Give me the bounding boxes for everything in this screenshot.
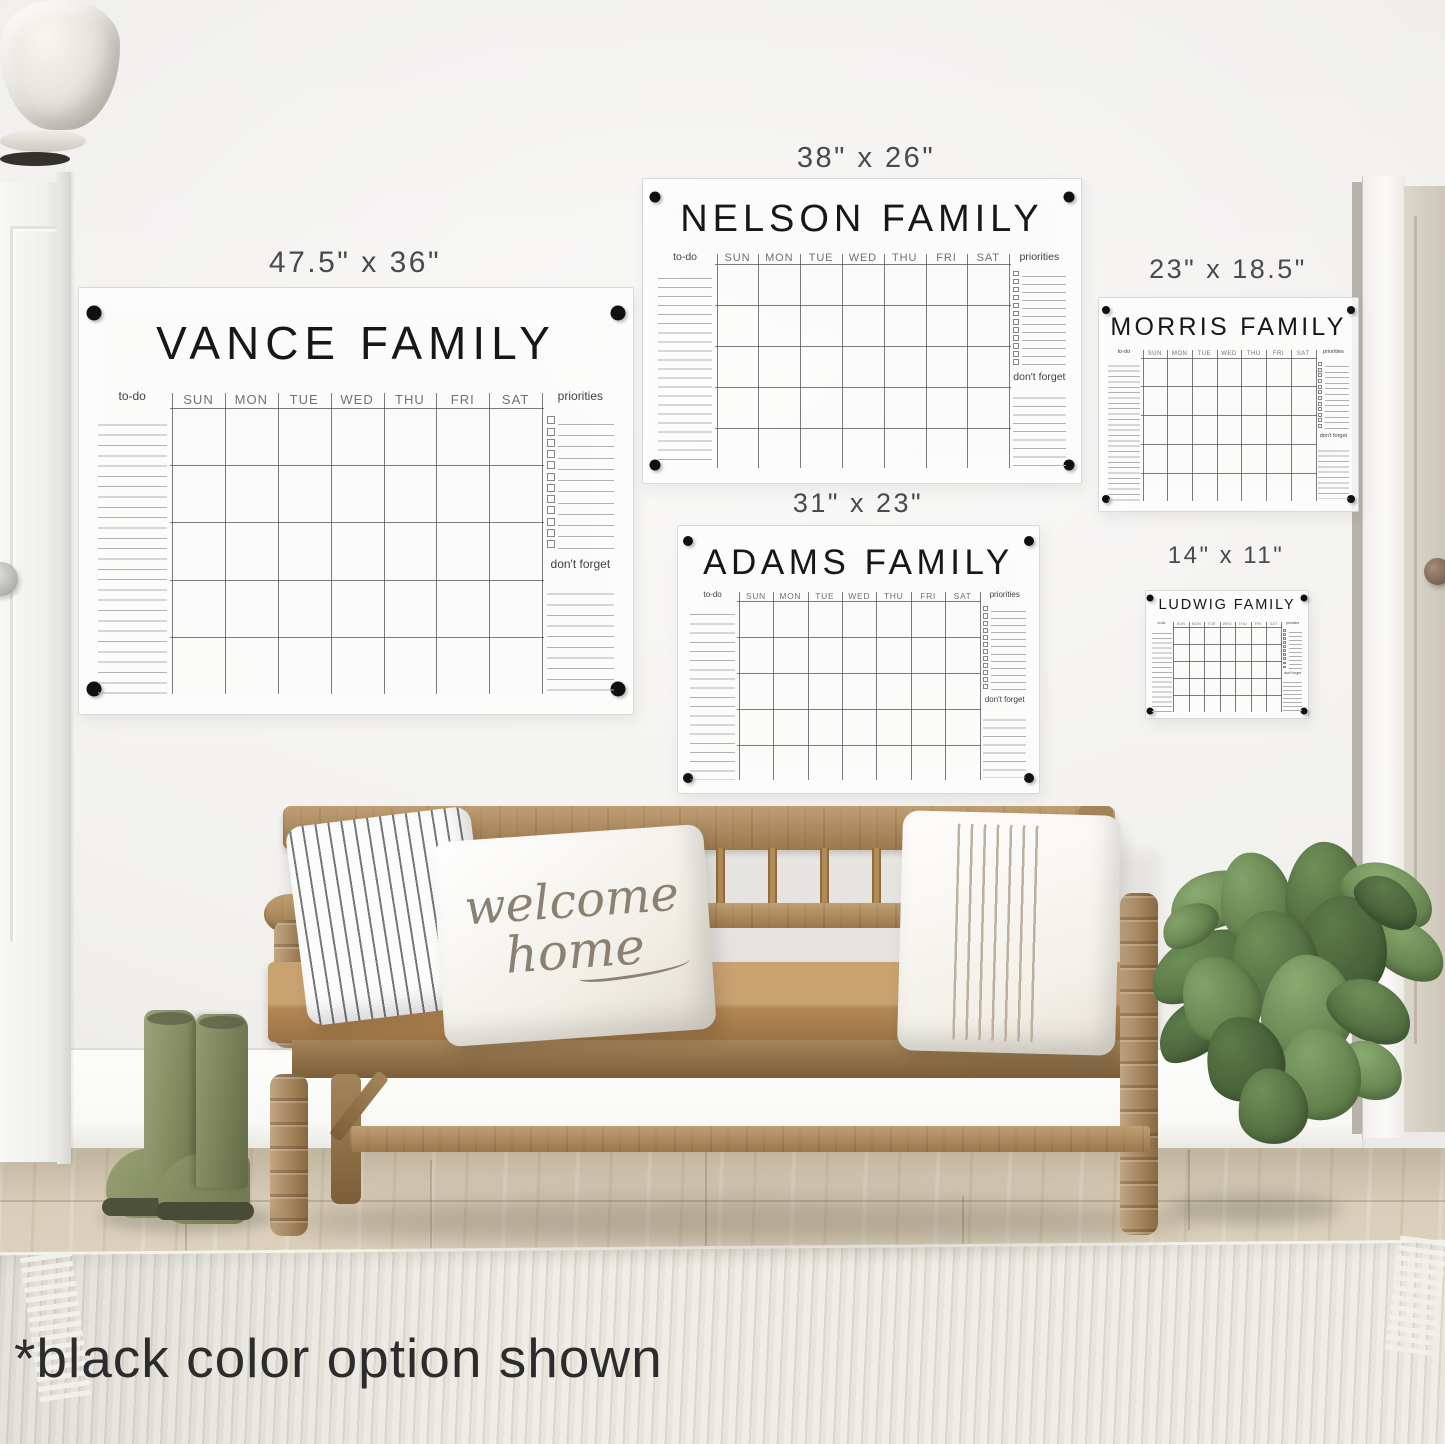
plant-pot-opening	[0, 152, 70, 166]
plant-pot-rim	[0, 130, 86, 152]
plant-pot	[0, 0, 120, 130]
caption-text: *black color option shown	[14, 1326, 663, 1390]
fiddle-leaf-fig-plant	[0, 0, 1445, 1444]
hallway-product-scene: 47.5" x 36"VANCE FAMILYto-doprioritiesdo…	[0, 0, 1445, 1444]
